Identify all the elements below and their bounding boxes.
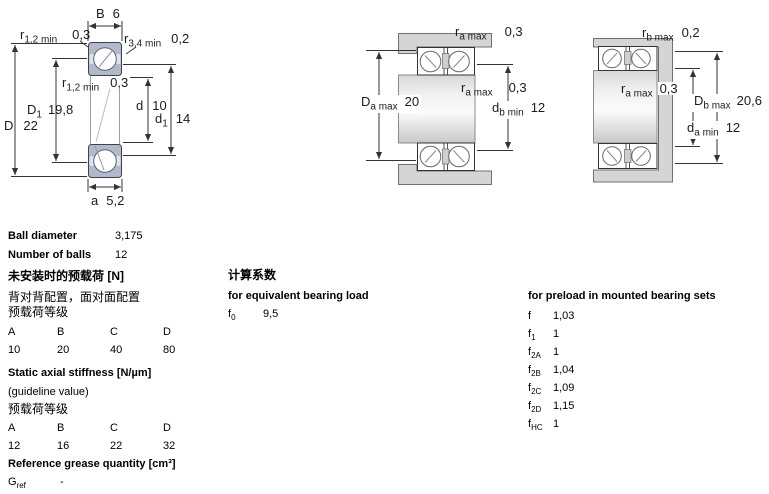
ball: [94, 150, 117, 173]
stiffness-class-label: 预载荷等级: [8, 403, 68, 416]
grease-row: Gref -: [8, 476, 88, 488]
dim-label-ra-max-top: ra max0,3: [455, 25, 523, 43]
factor-value: 9,5: [263, 308, 278, 320]
factor-symbol-sub: 2C: [531, 387, 541, 396]
dim-value: 0,2: [171, 32, 189, 45]
factor-value: 1: [553, 328, 559, 340]
header-cell: B: [57, 422, 64, 434]
dim-label-Db-max: Db max20,6: [692, 94, 764, 112]
bearing-datasheet-page: B6 r1,2 min0,3 r3,4 min0,2 r1,2 min0,3 D…: [0, 0, 769, 494]
dim-value: 0,3: [658, 82, 680, 95]
bearing-pair-top: [599, 47, 658, 71]
preload-class-header-row: A B C D: [8, 326, 188, 338]
dim-label-B: B6: [96, 7, 120, 25]
grease-value: -: [60, 476, 64, 488]
bearing-pair-bottom: [418, 143, 475, 171]
dim-label-ra-max-mid-right: ra max0,3: [621, 82, 680, 100]
header-cell: B: [57, 326, 64, 338]
factor-symbol-sub: 2D: [531, 405, 541, 414]
calculation-factors-title: 计算系数: [228, 269, 276, 282]
factor-row-f0: f0 9,5: [228, 308, 318, 320]
factor-symbol-sub: 0: [231, 313, 235, 322]
dim-value: 0,3: [509, 81, 527, 94]
ball-diameter-value: 3,175: [115, 230, 143, 242]
dim-sub: b min: [499, 108, 523, 119]
dim-sub: 3,4 min: [128, 39, 161, 50]
dim-sub: b max: [646, 33, 673, 44]
dim-value: 22: [23, 119, 37, 132]
factor-symbol-sub: 2A: [531, 351, 541, 360]
factor-row-f2B: f2B 1,04: [528, 364, 618, 376]
factor-row-f2A: f2A 1: [528, 346, 618, 358]
dim-base: D: [27, 102, 36, 117]
factor-symbol-sub: 1: [531, 333, 535, 342]
factor-symbol: f: [528, 310, 531, 322]
bearing-pair-top: [418, 48, 475, 76]
stiffness-title: Static axial stiffness [N/µm]: [8, 367, 151, 379]
value-cell: 22: [110, 440, 122, 452]
dim-sub: a max: [625, 89, 652, 100]
dim-sub: a max: [465, 88, 492, 99]
dim-base: D: [694, 93, 703, 108]
preload-class-label: 预载荷等级: [8, 306, 68, 319]
factor-row-fHC: fHC 1: [528, 418, 618, 430]
value-cell: 16: [57, 440, 69, 452]
stiffness-header-row: A B C D: [8, 422, 188, 434]
dim-base: D: [4, 118, 13, 133]
stiffness-values-row: 12 16 22 32: [8, 440, 188, 452]
dim-value: 0,3: [108, 76, 130, 89]
grease-title: Reference grease quantity [cm³]: [8, 458, 176, 470]
factor-row-f: f 1,03: [528, 310, 618, 322]
value-cell: 80: [163, 344, 175, 356]
dim-value: 20,6: [737, 94, 762, 107]
bearing-pair-bottom: [599, 144, 658, 169]
number-of-balls-value: 12: [115, 249, 127, 261]
dim-sub: 1,2 min: [24, 35, 57, 46]
dim-label-r12-top: r1,2 min0,3: [20, 28, 90, 46]
dim-base: d: [136, 98, 143, 113]
value-cell: 10: [8, 344, 20, 356]
dim-sub: 1: [162, 119, 168, 130]
header-cell: A: [8, 326, 15, 338]
factor-row-f2C: f2C 1,09: [528, 382, 618, 394]
preload-unmounted-subtitle: 背对背配置，面对面配置: [8, 291, 140, 304]
dim-label-ra-max-mid: ra max0,3: [461, 81, 527, 99]
bearing-section-top: [89, 43, 122, 76]
dim-label-da-min: da min12: [685, 121, 742, 139]
dim-value: 14: [174, 112, 192, 125]
header-cell: D: [163, 422, 171, 434]
dim-value: 19,8: [48, 103, 73, 116]
dim-value: 0,3: [505, 25, 523, 38]
dim-value: 12: [726, 121, 740, 134]
dim-label-Da-max: Da max20: [359, 95, 421, 113]
factor-symbol-sub: 2B: [531, 369, 541, 378]
dim-base: D: [361, 94, 370, 109]
dim-label-r12-mid: r1,2 min0,3: [62, 76, 130, 94]
ball-diameter-label: Ball diameter: [8, 230, 77, 242]
factor-value: 1,09: [553, 382, 574, 394]
dim-sub: 1,2 min: [66, 83, 99, 94]
dim-label-r34: r3,4 min0,2: [124, 32, 189, 50]
factor-symbol-sub: HC: [531, 423, 543, 432]
dim-label-a: a5,2: [91, 194, 124, 212]
factor-value: 1,03: [553, 310, 574, 322]
dim-label-rb-max-top: rb max0,2: [642, 26, 700, 44]
dim-label-D: D22: [4, 119, 38, 137]
preload-values-row: 10 20 40 80: [8, 344, 188, 356]
factor-value: 1,04: [553, 364, 574, 376]
dim-sub: b max: [703, 101, 730, 112]
dim-base: a: [91, 193, 98, 208]
dim-value: 6: [113, 7, 120, 20]
dim-value: 5,2: [106, 194, 124, 207]
dim-sub: a min: [694, 128, 718, 139]
value-cell: 40: [110, 344, 122, 356]
equivalent-load-title: for equivalent bearing load: [228, 290, 369, 302]
dim-value: 0,3: [72, 28, 90, 41]
dim-value: 20: [405, 95, 419, 108]
factor-value: 1,15: [553, 400, 574, 412]
factor-row-f1: f1 1: [528, 328, 618, 340]
preload-unmounted-title: 未安装时的预载荷 [N]: [8, 270, 124, 283]
dim-label-d1: d114: [155, 112, 192, 130]
header-cell: C: [110, 422, 118, 434]
dim-base: B: [96, 6, 105, 21]
value-cell: 20: [57, 344, 69, 356]
factor-row-f2D: f2D 1,15: [528, 400, 618, 412]
bearing-section-bottom: [89, 145, 122, 178]
factor-value: 1: [553, 346, 559, 358]
dim-label-db-min: db min12: [490, 101, 547, 119]
value-cell: 12: [8, 440, 20, 452]
factor-value: 1: [553, 418, 559, 430]
value-cell: 32: [163, 440, 175, 452]
header-cell: C: [110, 326, 118, 338]
dim-sub: a max: [370, 102, 397, 113]
header-cell: A: [8, 422, 15, 434]
dim-sub: a max: [459, 32, 486, 43]
stiffness-subtitle: (guideline value): [8, 386, 89, 398]
grease-symbol-sub: ref: [17, 481, 26, 490]
number-of-balls-label: Number of balls: [8, 249, 91, 261]
grease-symbol: G: [8, 476, 17, 488]
header-cell: D: [163, 326, 171, 338]
dim-value: 12: [531, 101, 545, 114]
dim-value: 0,2: [682, 26, 700, 39]
preload-mounted-sets-title: for preload in mounted bearing sets: [528, 290, 716, 302]
